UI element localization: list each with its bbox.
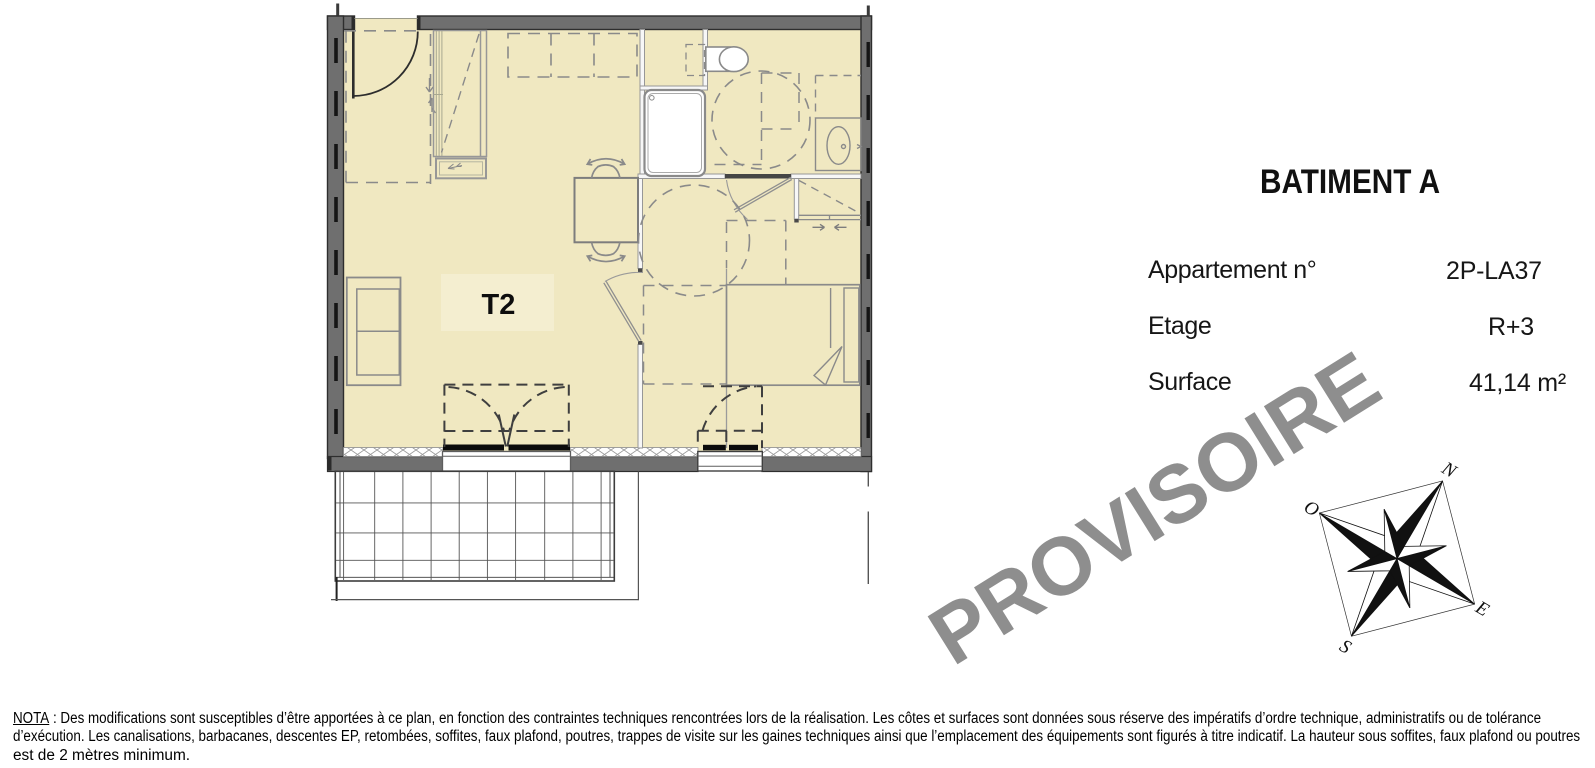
svg-text:E: E — [1471, 597, 1493, 622]
svg-text:N: N — [1437, 457, 1461, 483]
svg-text:O: O — [1300, 496, 1323, 521]
svg-text:S: S — [1336, 636, 1355, 659]
svg-text:T2: T2 — [482, 289, 516, 321]
